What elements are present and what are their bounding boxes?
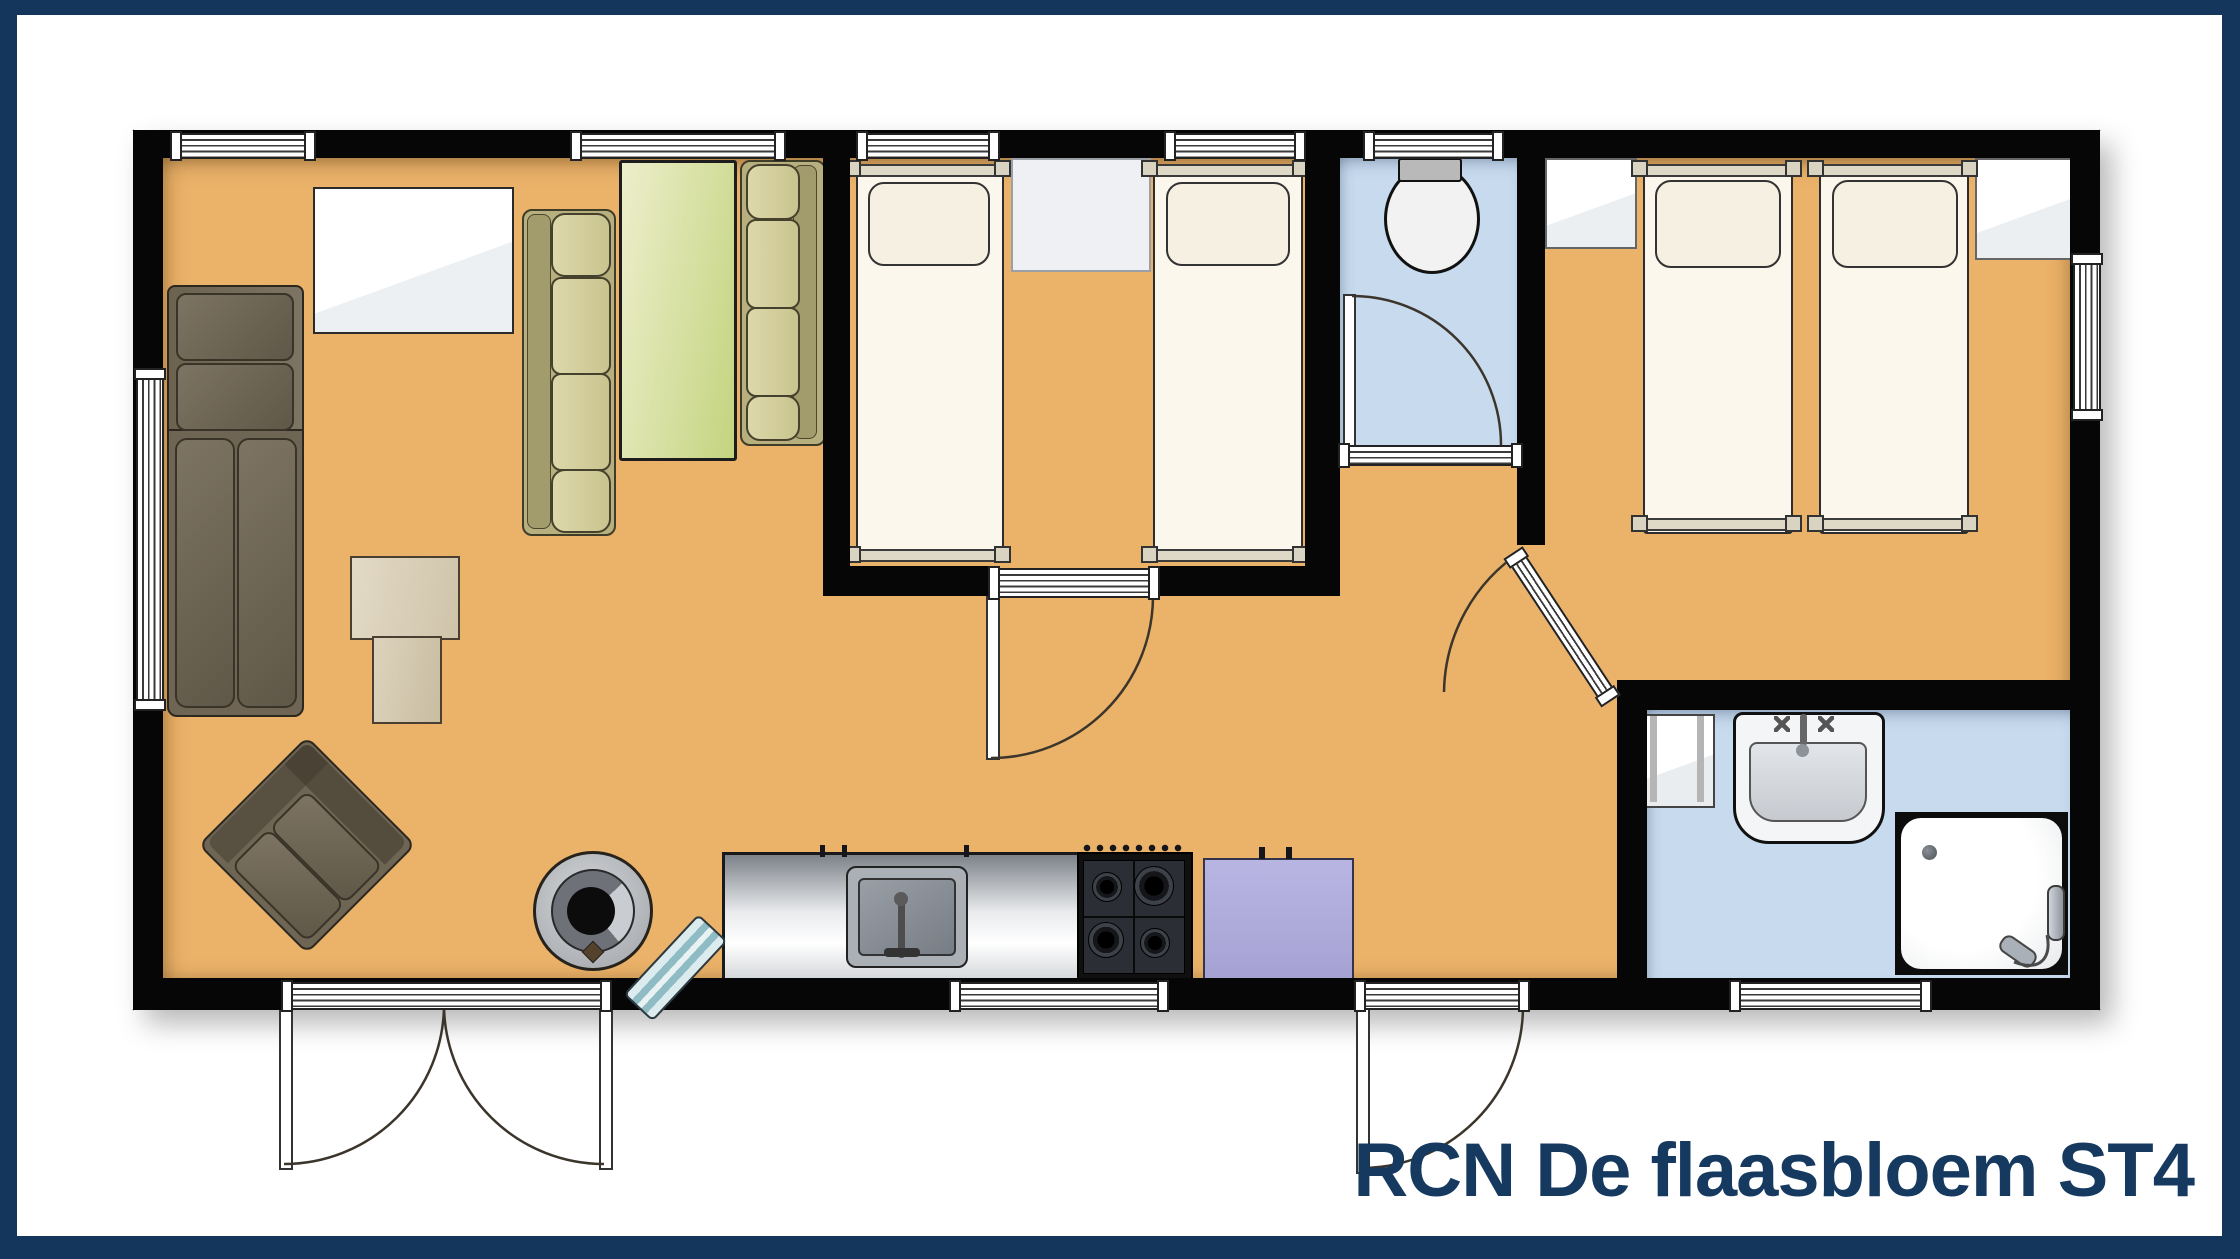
french-door-right-arc bbox=[444, 1006, 604, 1164]
bedroom2-left-wall bbox=[1517, 158, 1545, 545]
window-bedroom1-top-2 bbox=[1166, 133, 1304, 159]
window-kitchen-bottom bbox=[951, 982, 1167, 1010]
floor-plan-page: RCN De flaasbloem ST4 bbox=[0, 0, 2240, 1259]
bedroom1-left-wall bbox=[823, 158, 850, 596]
window-living-top-2 bbox=[572, 133, 784, 159]
bedroom2-door-arc bbox=[1444, 551, 1522, 692]
shower-hose bbox=[2014, 935, 2048, 965]
window-toilet-top bbox=[1365, 133, 1502, 159]
toilet-door-sill bbox=[1340, 445, 1521, 466]
frame-border-right bbox=[2222, 0, 2240, 1259]
frame-border-bottom bbox=[0, 1236, 2240, 1259]
entrance-door-sill bbox=[1356, 982, 1528, 1010]
french-door-sill bbox=[283, 982, 610, 1010]
bathroom-left-wall bbox=[1617, 680, 1647, 1010]
french-door-left-arc bbox=[284, 1006, 444, 1164]
frame-border-top bbox=[0, 0, 2240, 15]
toilet-door-arc bbox=[1352, 296, 1501, 445]
window-bedroom1-top-1 bbox=[858, 133, 998, 159]
plan-title: RCN De flaasbloem ST4 bbox=[1353, 1133, 2194, 1209]
bathroom-top-wall bbox=[1617, 680, 2100, 710]
outer-wall-top bbox=[133, 130, 2100, 158]
window-bathroom-bottom bbox=[1731, 982, 1930, 1010]
window-bedroom2-right bbox=[2073, 255, 2101, 419]
bedroom1-bottom-wall-left bbox=[823, 566, 990, 596]
window-living-top-1 bbox=[172, 133, 314, 159]
frame-border-left bbox=[0, 0, 17, 1259]
bedroom1-toilet-wall bbox=[1305, 158, 1340, 596]
door-swing-arcs bbox=[0, 0, 2240, 1259]
window-living-left bbox=[136, 370, 164, 709]
bedroom1-door-sill bbox=[990, 568, 1158, 598]
bedroom1-door-arc bbox=[991, 596, 1153, 758]
